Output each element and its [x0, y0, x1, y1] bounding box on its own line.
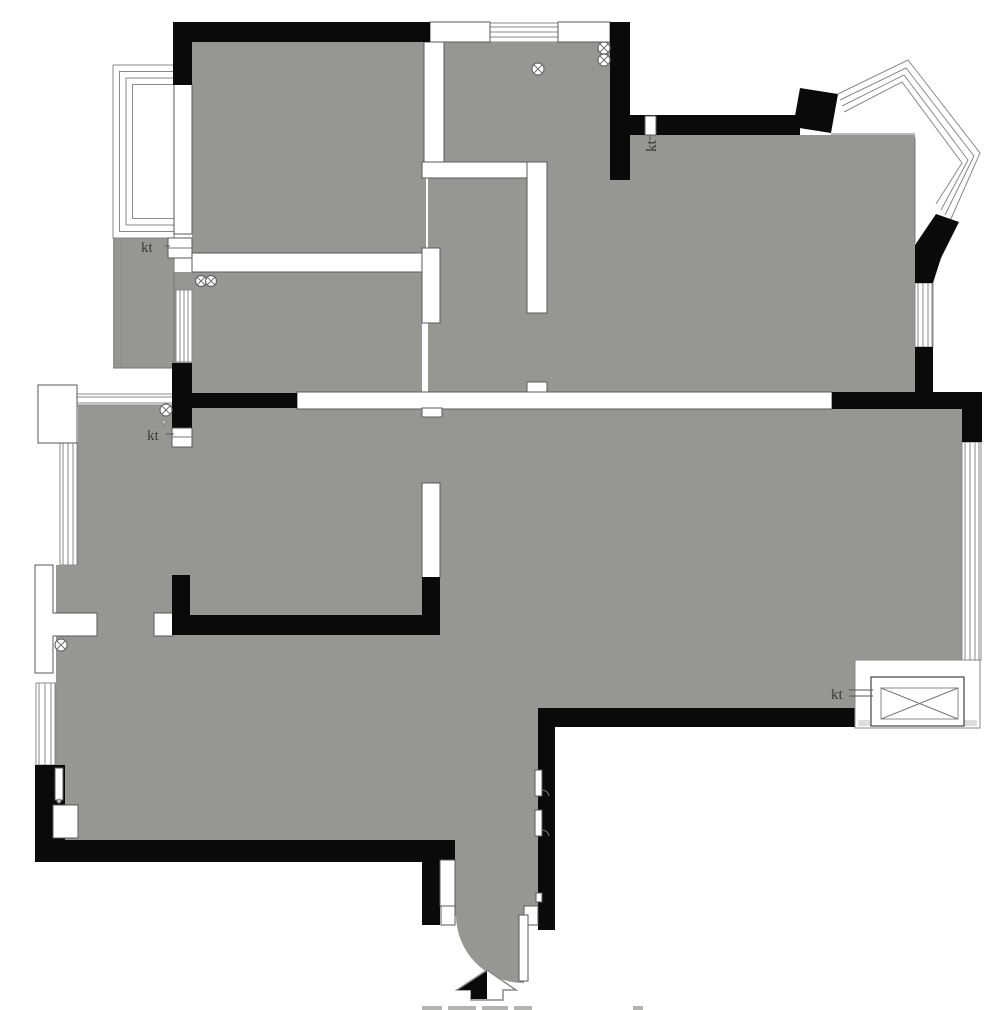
- partition-kitchen-west: [424, 42, 444, 164]
- ac-label-balcony: kt: [141, 240, 154, 256]
- switch-fixture-b: [535, 810, 542, 836]
- opening-band-notch-a: [422, 408, 442, 417]
- room-mid-left: [190, 272, 422, 393]
- ac-outdoor-unit: [855, 660, 980, 728]
- wall-entry-west: [422, 860, 440, 925]
- partition-hall-east: [527, 162, 547, 313]
- circled-x-icon: [55, 639, 67, 651]
- left-pillar-upper: [38, 385, 77, 443]
- wall-living-south: [538, 708, 872, 727]
- side-balcony-strip: [113, 238, 174, 368]
- living-room-upper: [78, 395, 555, 565]
- ac-label-left: kt: [147, 428, 160, 444]
- ac-slot-topright: [645, 116, 656, 135]
- partition-mid-vertical: [422, 248, 440, 323]
- hallway-east-edge: [610, 180, 630, 392]
- fixture-tick: [536, 893, 542, 902]
- side-door-leaf: [55, 768, 63, 800]
- ac-slot-balcony: [168, 238, 192, 258]
- wall-bottom: [35, 840, 455, 862]
- room-kitchen: [444, 42, 610, 162]
- circled-x-icon: [598, 54, 610, 66]
- wall-kitchen-east: [610, 22, 630, 180]
- partition-bedroom3-east: [422, 483, 440, 578]
- entry-door-leaf: [519, 915, 528, 981]
- partition-hall-top: [422, 162, 529, 178]
- opening-band-center: [297, 392, 832, 409]
- floor-plan-page: kt kt kt kt: [0, 0, 1000, 1010]
- entrance-arrow-fill: [458, 971, 487, 999]
- wall-bedroom3-south: [172, 615, 440, 635]
- bedroom3-door-gap: [154, 613, 173, 636]
- wall-mid-stub: [172, 363, 192, 428]
- partition-bedrooms: [192, 253, 422, 272]
- wall-right-a: [915, 347, 933, 392]
- top-wall-white-left: [430, 22, 490, 42]
- living-room-right: [555, 409, 855, 710]
- circled-x-icon: [160, 404, 172, 416]
- opening-band-notch-b: [527, 382, 547, 392]
- ac-label-topright: kt: [644, 139, 660, 152]
- living-room-lower: [56, 565, 555, 840]
- circled-x-icon: [196, 276, 207, 287]
- small-dot-symbol: [162, 420, 166, 424]
- entry-wall-face: [440, 860, 455, 906]
- room-top-right: [630, 135, 915, 392]
- room-top-left: [192, 42, 426, 253]
- wall-right-b: [832, 392, 982, 409]
- entry-jamb-left: [441, 906, 455, 925]
- floor-plan-drawing: kt kt kt kt: [0, 0, 1000, 1010]
- wall-bay-upper: [793, 88, 838, 133]
- switch-fixture-a: [535, 770, 542, 796]
- entry-corridor: [455, 840, 538, 916]
- side-door-niche: [53, 805, 78, 838]
- ac-slot-left: [172, 428, 192, 447]
- side-door-hinge-dot: [57, 799, 61, 803]
- wall-right-c: [962, 409, 982, 442]
- balcony-room-gap: [174, 84, 192, 234]
- wall-bay-lower: [915, 214, 959, 283]
- ac-label-bottomright: kt: [831, 687, 844, 703]
- top-wall-white-right: [558, 22, 610, 42]
- wall-topleft-corner: [173, 40, 192, 85]
- wall-bedroom3-corner: [422, 577, 440, 635]
- wall-top-left: [173, 22, 430, 42]
- circled-x-icon: [598, 42, 610, 54]
- circled-x-icon: [206, 276, 217, 287]
- circled-x-icon: [532, 63, 544, 75]
- living-room-right-edge: [855, 409, 963, 662]
- clipped-caption-fragments: [422, 1006, 643, 1010]
